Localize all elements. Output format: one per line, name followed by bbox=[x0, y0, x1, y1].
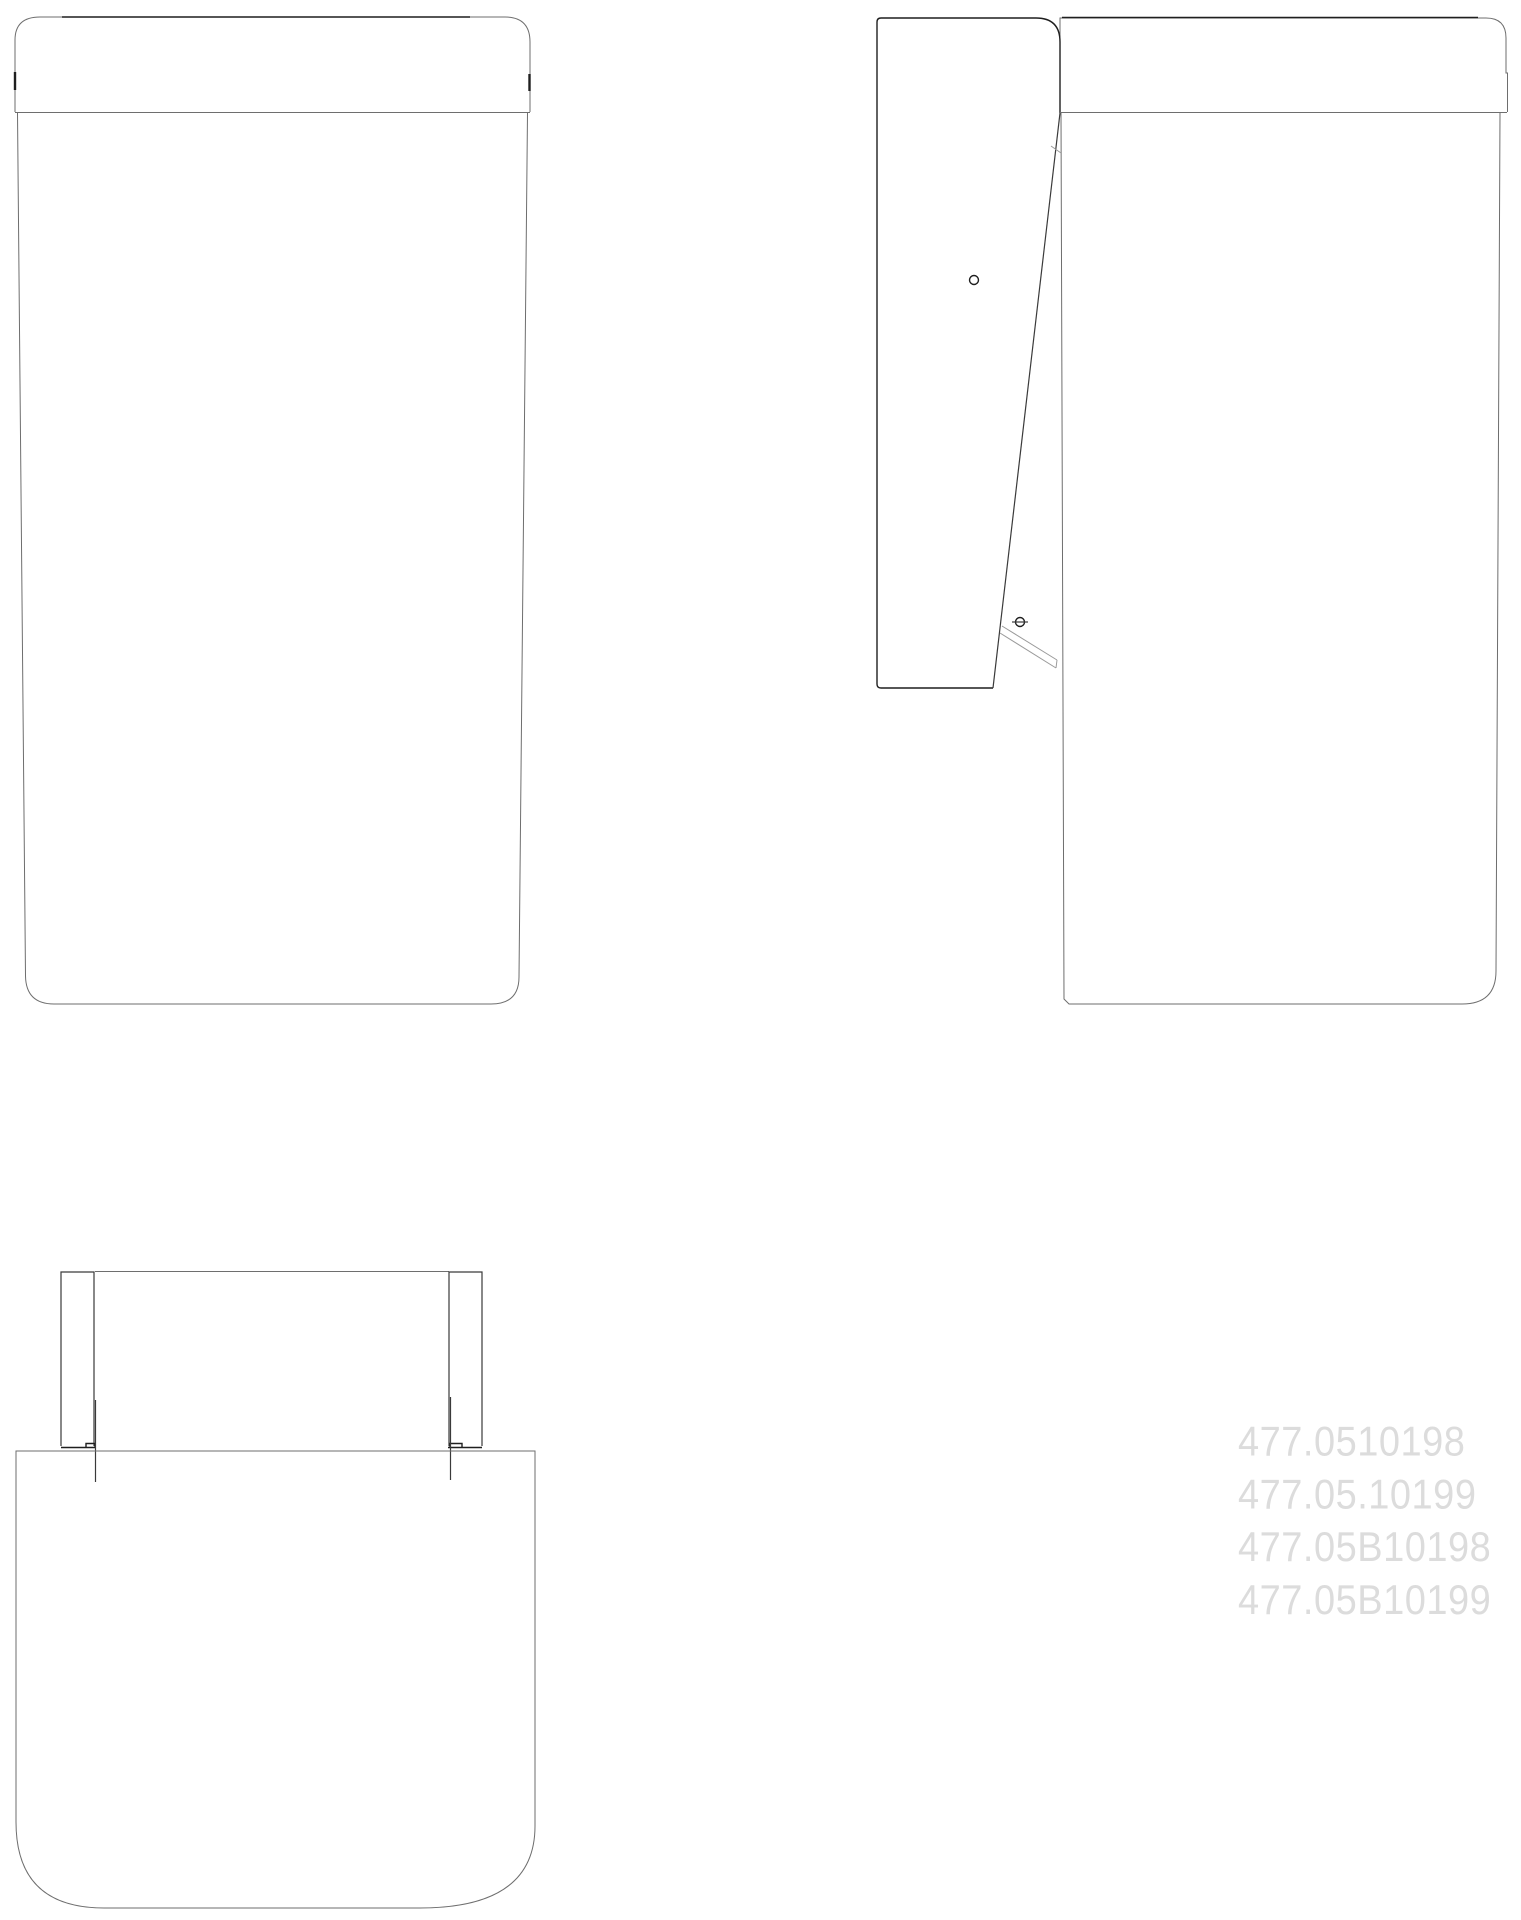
part-number-line: 477.05B10199 bbox=[1238, 1574, 1491, 1627]
side-flap-open-edge bbox=[993, 113, 1060, 688]
front-lid-outline bbox=[15, 17, 530, 112]
side-body-outline bbox=[1061, 113, 1500, 1004]
plan-right-rail-outline bbox=[449, 1272, 482, 1446]
front-body-outline bbox=[18, 113, 528, 1004]
part-number-line: 477.0510198 bbox=[1238, 1416, 1491, 1469]
part-number-line: 477.05B10198 bbox=[1238, 1522, 1491, 1575]
top-view bbox=[16, 1272, 535, 1909]
plan-body-outline bbox=[16, 1451, 535, 1908]
drawing-sheet: 477.0510198 477.05.10199 477.05B10198 47… bbox=[0, 0, 1521, 1920]
part-number-watermark: 477.0510198 477.05.10199 477.05B10198 47… bbox=[1238, 1416, 1491, 1627]
plan-left-rail-outline bbox=[61, 1272, 94, 1446]
damper-strut bbox=[1000, 626, 1057, 668]
flap-pivot-hole-icon bbox=[970, 276, 979, 285]
plan-right-rail-notch bbox=[450, 1444, 462, 1448]
side-lid-outline bbox=[1060, 18, 1508, 112]
front-view bbox=[15, 17, 530, 1004]
part-number-line: 477.05.10199 bbox=[1238, 1469, 1491, 1522]
technical-drawing-svg bbox=[0, 0, 1521, 1920]
side-view bbox=[877, 18, 1508, 1005]
